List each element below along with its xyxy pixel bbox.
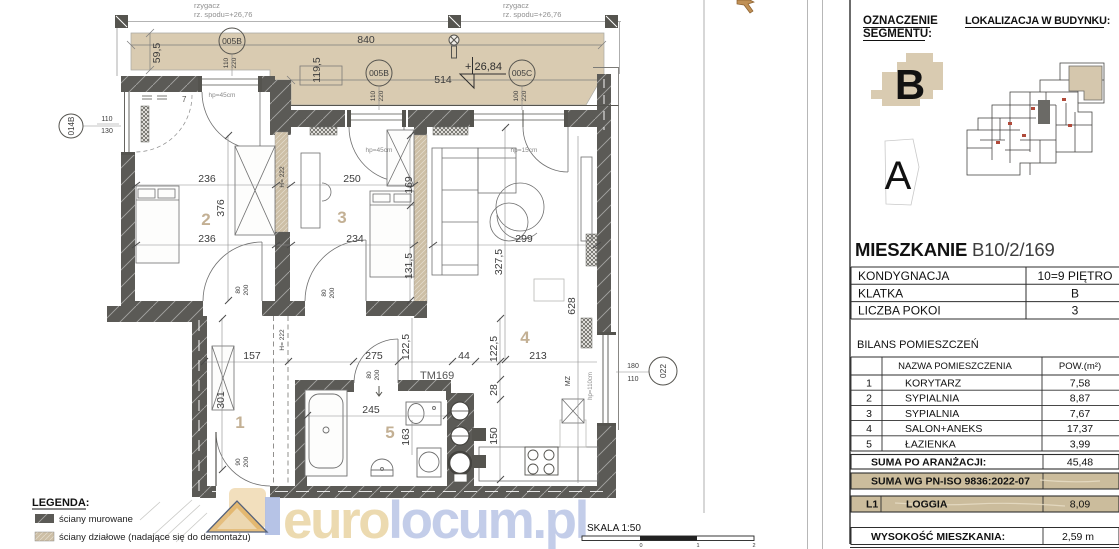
svg-text:LOGGIA: LOGGIA bbox=[906, 499, 948, 511]
svg-text:ściany działowe (nadające się: ściany działowe (nadające się do demonta… bbox=[59, 532, 251, 543]
svg-text:KLATKA: KLATKA bbox=[858, 287, 903, 301]
svg-text:TM169: TM169 bbox=[420, 370, 454, 382]
svg-text:110: 110 bbox=[627, 376, 638, 383]
svg-text:022: 022 bbox=[658, 364, 668, 378]
svg-text:rzygacz: rzygacz bbox=[194, 1, 220, 10]
svg-text:299: 299 bbox=[515, 233, 533, 245]
svg-text:hp=45cm: hp=45cm bbox=[209, 92, 236, 99]
svg-text:NAZWA POMIESZCZENIA: NAZWA POMIESZCZENIA bbox=[898, 361, 1012, 372]
svg-text:122,5: 122,5 bbox=[488, 336, 500, 362]
svg-text:250: 250 bbox=[343, 173, 361, 185]
svg-text:245: 245 bbox=[362, 404, 380, 416]
svg-text:POW.(m²): POW.(m²) bbox=[1059, 361, 1101, 372]
svg-text:2: 2 bbox=[866, 393, 872, 405]
svg-text:LEGENDA:: LEGENDA: bbox=[32, 497, 89, 509]
svg-text:hp=15cm: hp=15cm bbox=[511, 147, 538, 154]
svg-text:5: 5 bbox=[866, 438, 872, 450]
svg-text:100: 100 bbox=[513, 90, 520, 101]
svg-text:L1: L1 bbox=[866, 499, 878, 511]
svg-text:17,37: 17,37 bbox=[1067, 423, 1093, 435]
svg-text:3: 3 bbox=[337, 208, 346, 227]
svg-text:628: 628 bbox=[566, 297, 578, 315]
svg-text:28: 28 bbox=[488, 384, 500, 396]
svg-text:005B: 005B bbox=[222, 36, 242, 46]
svg-text:2: 2 bbox=[752, 543, 755, 549]
svg-text:4: 4 bbox=[520, 328, 530, 347]
svg-text:7,58: 7,58 bbox=[1070, 378, 1091, 390]
svg-text:213: 213 bbox=[529, 350, 547, 362]
svg-text:2,59 m: 2,59 m bbox=[1062, 531, 1094, 543]
svg-text:3,99: 3,99 bbox=[1070, 438, 1091, 450]
svg-text:H= 222: H= 222 bbox=[279, 166, 286, 188]
svg-text:163: 163 bbox=[400, 428, 412, 446]
svg-text:4: 4 bbox=[866, 423, 872, 435]
svg-text:rz. spodu=+26,76: rz. spodu=+26,76 bbox=[503, 10, 561, 19]
svg-text:236: 236 bbox=[198, 173, 216, 185]
svg-text:MZ: MZ bbox=[565, 375, 572, 386]
svg-text:B: B bbox=[1071, 287, 1079, 301]
svg-text:514: 514 bbox=[434, 74, 452, 86]
svg-text:10=9 PIĘTRO: 10=9 PIĘTRO bbox=[1037, 269, 1112, 283]
svg-text:KORYTARZ: KORYTARZ bbox=[905, 378, 962, 390]
svg-text:157: 157 bbox=[243, 350, 261, 362]
svg-text:80: 80 bbox=[235, 286, 242, 294]
svg-text:SYPIALNIA: SYPIALNIA bbox=[905, 408, 959, 420]
svg-text:rz. spodu=+26,76: rz. spodu=+26,76 bbox=[194, 10, 252, 19]
svg-text:200: 200 bbox=[329, 287, 336, 298]
svg-text:80: 80 bbox=[366, 371, 373, 379]
svg-text:SUMA PO ARANŻACJI:: SUMA PO ARANŻACJI: bbox=[871, 456, 986, 469]
svg-text:1: 1 bbox=[866, 378, 872, 390]
svg-text:SKALA 1:50: SKALA 1:50 bbox=[587, 523, 641, 534]
svg-text:130: 130 bbox=[101, 128, 113, 135]
svg-text:+ 26,84: + 26,84 bbox=[465, 61, 502, 73]
svg-text:BILANS POMIESZCZEŃ: BILANS POMIESZCZEŃ bbox=[857, 338, 979, 351]
svg-text:KONDYGNACJA: KONDYGNACJA bbox=[858, 269, 949, 283]
svg-text:3: 3 bbox=[866, 408, 872, 420]
svg-text:rzygacz: rzygacz bbox=[503, 1, 529, 10]
svg-text:327,5: 327,5 bbox=[493, 249, 505, 275]
svg-text:LOKALIZACJA W BUDYNKU:: LOKALIZACJA W BUDYNKU: bbox=[965, 15, 1110, 27]
svg-text:SALON+ANEKS: SALON+ANEKS bbox=[905, 423, 982, 435]
svg-text:200: 200 bbox=[243, 284, 250, 295]
svg-text:B: B bbox=[895, 61, 925, 108]
svg-text:0: 0 bbox=[639, 543, 642, 549]
svg-text:90: 90 bbox=[235, 458, 242, 466]
svg-text:1: 1 bbox=[696, 543, 699, 549]
svg-text:8,09: 8,09 bbox=[1070, 499, 1091, 511]
svg-text:150: 150 bbox=[488, 427, 500, 445]
svg-text:7: 7 bbox=[182, 95, 187, 104]
svg-text:SUMA WG PN-ISO 9836:2022-07: SUMA WG PN-ISO 9836:2022-07 bbox=[871, 476, 1030, 488]
svg-text:44: 44 bbox=[458, 350, 470, 362]
svg-text:110: 110 bbox=[370, 90, 377, 101]
svg-text:SYPIALNIA: SYPIALNIA bbox=[905, 393, 959, 405]
svg-text:59,5: 59,5 bbox=[151, 43, 163, 64]
svg-text:LICZBA POKOI: LICZBA POKOI bbox=[858, 304, 941, 318]
svg-text:MIESZKANIE B10/2/169: MIESZKANIE B10/2/169 bbox=[855, 239, 1055, 260]
svg-text:131,5: 131,5 bbox=[403, 253, 415, 279]
svg-text:840: 840 bbox=[357, 34, 375, 46]
svg-text:005B: 005B bbox=[369, 68, 389, 78]
svg-text:SEGMENTU:: SEGMENTU: bbox=[863, 28, 932, 40]
svg-text:H= 222: H= 222 bbox=[279, 329, 286, 351]
svg-text:8,87: 8,87 bbox=[1070, 393, 1091, 405]
svg-text:ściany murowane: ściany murowane bbox=[59, 514, 133, 525]
svg-text:eurolocum.pl: eurolocum.pl bbox=[283, 491, 587, 549]
svg-text:45,48: 45,48 bbox=[1067, 457, 1093, 469]
svg-text:OZNACZENIE: OZNACZENIE bbox=[863, 15, 938, 27]
svg-text:169: 169 bbox=[403, 176, 415, 194]
svg-text:234: 234 bbox=[346, 233, 364, 245]
svg-text:110: 110 bbox=[223, 57, 230, 68]
svg-text:ŁAZIENKA: ŁAZIENKA bbox=[905, 438, 956, 450]
svg-text:275: 275 bbox=[365, 350, 383, 362]
svg-text:110: 110 bbox=[101, 116, 112, 123]
svg-text:hp=110cm: hp=110cm bbox=[588, 372, 594, 400]
svg-text:119,5: 119,5 bbox=[311, 57, 323, 83]
svg-text:005C: 005C bbox=[512, 68, 532, 78]
svg-text:1: 1 bbox=[235, 413, 244, 432]
svg-text:2: 2 bbox=[201, 210, 210, 229]
svg-text:200: 200 bbox=[243, 456, 250, 467]
svg-text:376: 376 bbox=[215, 199, 227, 217]
svg-text:5: 5 bbox=[385, 423, 394, 442]
svg-text:014B: 014B bbox=[67, 117, 76, 136]
svg-text:236: 236 bbox=[198, 233, 216, 245]
svg-text:200: 200 bbox=[374, 369, 381, 380]
svg-text:A: A bbox=[885, 154, 912, 198]
svg-text:WYSOKOŚĆ MIESZKANIA:: WYSOKOŚĆ MIESZKANIA: bbox=[871, 530, 1005, 543]
svg-text:7,67: 7,67 bbox=[1070, 408, 1091, 420]
svg-text:180: 180 bbox=[627, 363, 639, 370]
svg-text:hp=45cm: hp=45cm bbox=[366, 147, 393, 154]
svg-text:301: 301 bbox=[215, 391, 227, 409]
svg-text:122,5: 122,5 bbox=[400, 334, 412, 360]
svg-text:80: 80 bbox=[321, 289, 328, 297]
svg-text:3: 3 bbox=[1072, 304, 1079, 318]
